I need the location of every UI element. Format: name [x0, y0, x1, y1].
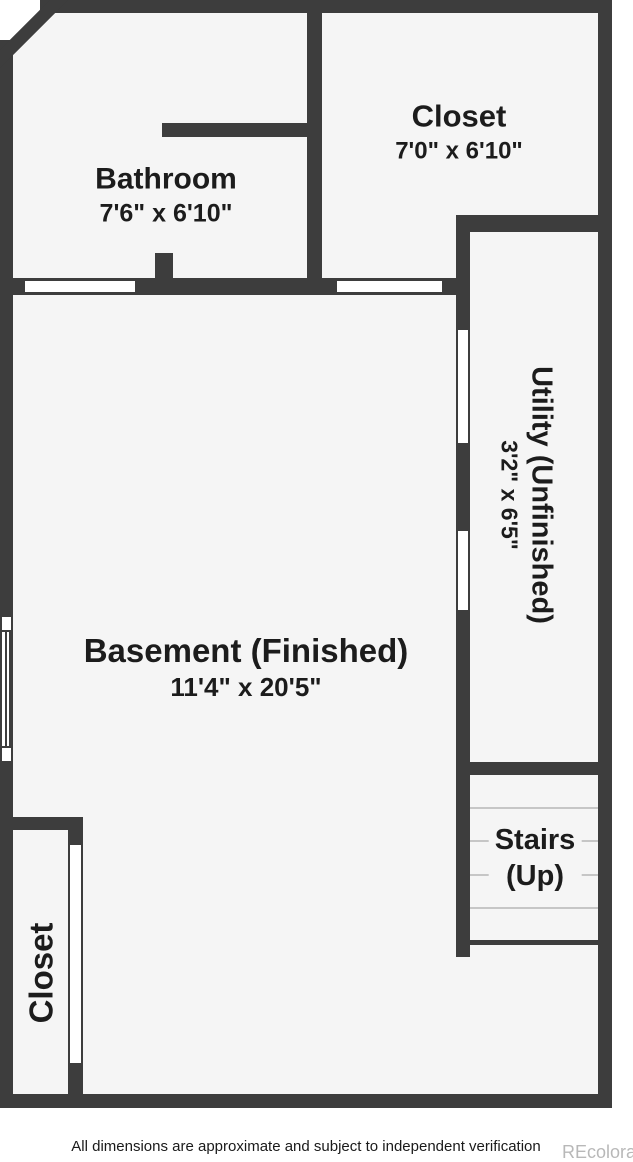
door-opening-closet-bl	[68, 845, 83, 1063]
room-label-basement: Basement (Finished) 11'4" x 20'5"	[84, 630, 409, 704]
room-name: Closet	[395, 98, 523, 137]
wall-utility-top	[456, 215, 612, 232]
door-opening-utility-lower	[456, 531, 470, 610]
room-dimensions: 7'6" x 6'10"	[95, 198, 237, 229]
wall-utility-stairs-divider	[456, 762, 612, 775]
room-name: Bathroom	[95, 161, 237, 199]
wall-outer-left	[0, 40, 13, 1108]
wall-closet-bl-top	[0, 817, 83, 830]
window	[0, 615, 13, 763]
room-name: Basement (Finished)	[84, 630, 409, 671]
wall-stairs-bottom-thin	[470, 940, 598, 945]
room-label-closet-top: Closet 7'0" x 6'10"	[395, 98, 523, 167]
window-glazing-line	[5, 632, 7, 746]
room-dimensions: 11'4" x 20'5"	[84, 671, 409, 704]
room-label-closet-bottom: Closet	[20, 923, 61, 1024]
room-label-bathroom: Bathroom 7'6" x 6'10"	[95, 161, 237, 230]
door-opening-utility-upper	[456, 330, 470, 443]
stair-tread-line	[470, 907, 598, 909]
wall-bathroom-closet-divider	[307, 13, 322, 295]
wall-door-stub	[155, 253, 173, 278]
room-dimensions: 7'0" x 6'10"	[395, 136, 523, 166]
wall-outer-top	[40, 0, 612, 13]
door-opening-bathroom	[25, 278, 135, 295]
room-name: Utility (Unfinished)	[523, 366, 559, 624]
wall-outer-right	[598, 0, 612, 1108]
room-dimensions: 3'2" x 6'5"	[495, 366, 524, 624]
floor-plan: Bathroom 7'6" x 6'10" Closet 7'0" x 6'10…	[0, 0, 633, 1162]
stair-tread-line	[470, 807, 598, 809]
wall-outer-bottom	[0, 1094, 612, 1108]
room-label-stairs: Stairs (Up)	[489, 822, 582, 895]
window-frame-line	[2, 746, 11, 748]
stairs-line2: (Up)	[489, 858, 582, 894]
disclaimer-text: All dimensions are approximate and subje…	[71, 1138, 540, 1155]
window-glazing-line	[9, 632, 11, 746]
watermark-text: REcolorado	[562, 1142, 633, 1162]
room-name: Closet	[20, 923, 61, 1024]
wall-bathroom-stub	[162, 123, 307, 137]
door-opening-closet-top	[337, 278, 442, 295]
room-label-utility: Utility (Unfinished) 3'2" x 6'5"	[495, 366, 560, 624]
stairs-line1: Stairs	[489, 822, 582, 858]
